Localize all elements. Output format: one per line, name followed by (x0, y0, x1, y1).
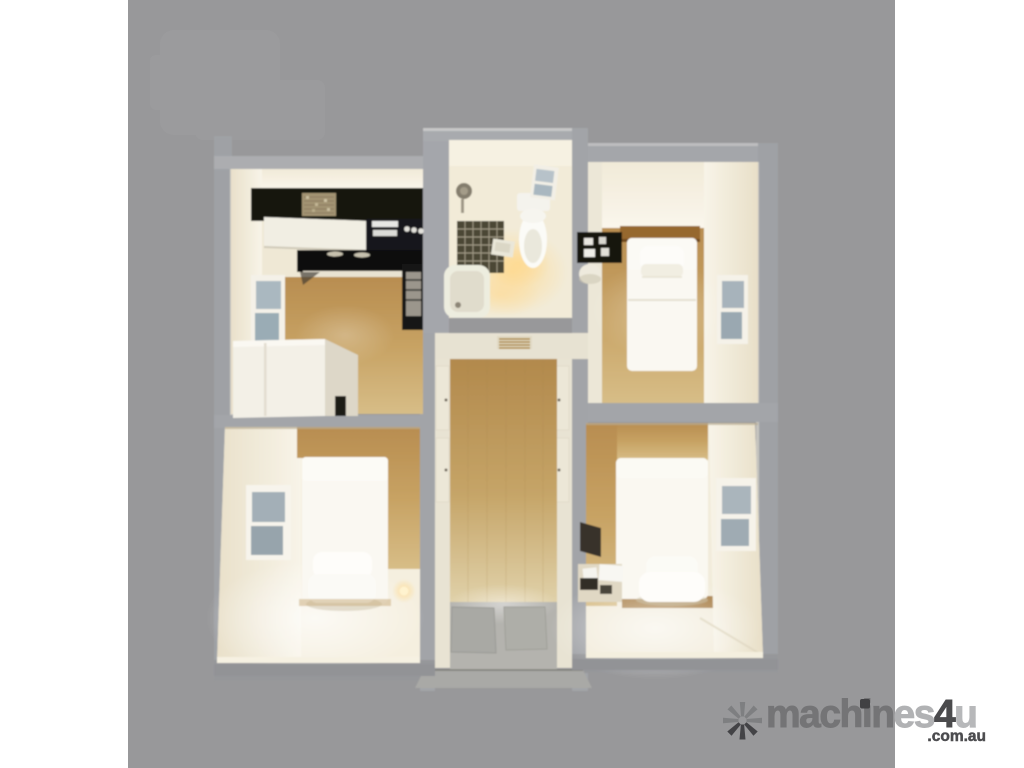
svg-text:.com.au: .com.au (927, 728, 986, 745)
